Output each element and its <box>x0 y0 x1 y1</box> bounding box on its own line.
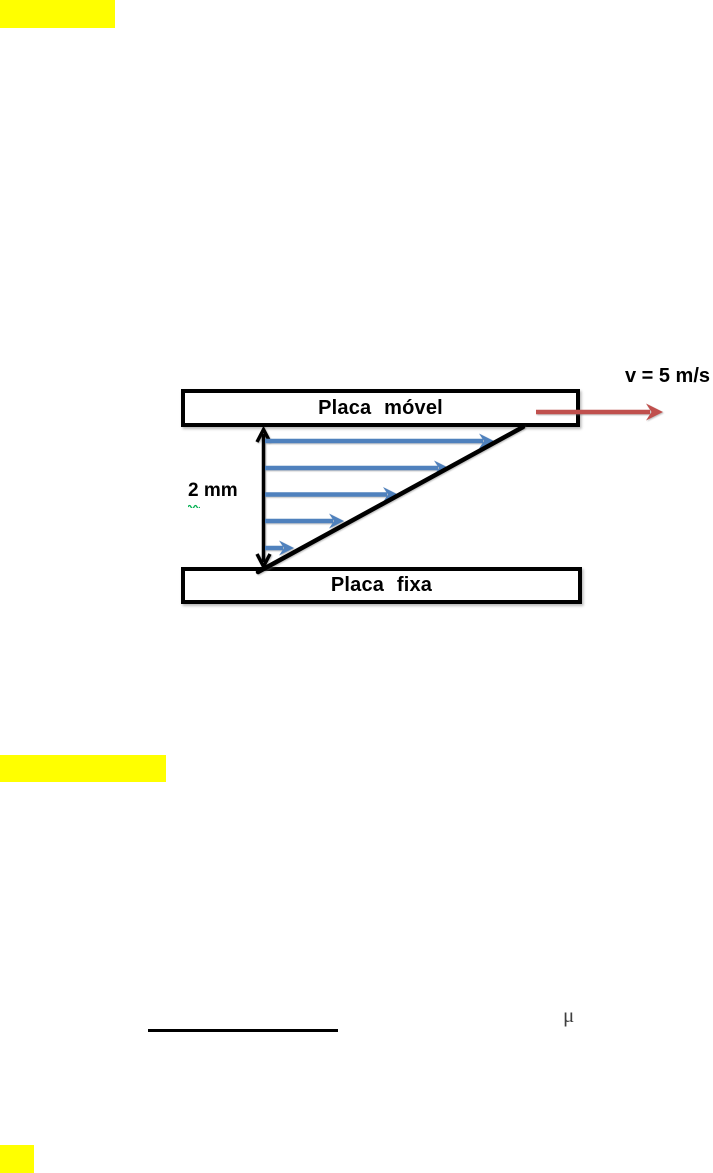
flow-arrow-2 <box>265 461 449 476</box>
gap-label: 2 mm <box>188 480 238 502</box>
gap-value: 2 <box>188 480 199 502</box>
flow-arrow-1 <box>265 434 494 449</box>
highlight-mark-top <box>0 0 115 28</box>
spellcheck-squiggle-icon <box>188 504 200 508</box>
fixed-plate: Placa fixa <box>181 567 582 604</box>
flow-arrow-3 <box>265 487 398 502</box>
velocity-gradient-line <box>258 427 523 572</box>
velocity-profile-arrows <box>265 434 494 556</box>
document-page: Placa móvel Placa fixa v = 5 m/s 2 mm <box>0 0 713 1173</box>
velocity-label: v = 5 m/s <box>592 365 710 388</box>
flow-arrow-4 <box>265 514 344 529</box>
gap-dimension-arrow <box>257 430 270 567</box>
flow-arrow-5 <box>265 541 294 556</box>
answer-blank-line <box>148 1029 338 1032</box>
gap-unit: mm <box>204 480 238 501</box>
moving-plate-label: Placa móvel <box>318 397 443 420</box>
gap-number: 2 <box>188 480 199 501</box>
highlight-mark-middle <box>0 755 166 782</box>
mu-symbol: μ <box>563 1003 574 1028</box>
highlight-mark-bottom <box>0 1145 34 1173</box>
fixed-plate-label: Placa fixa <box>331 574 432 597</box>
moving-plate: Placa móvel <box>181 389 580 427</box>
